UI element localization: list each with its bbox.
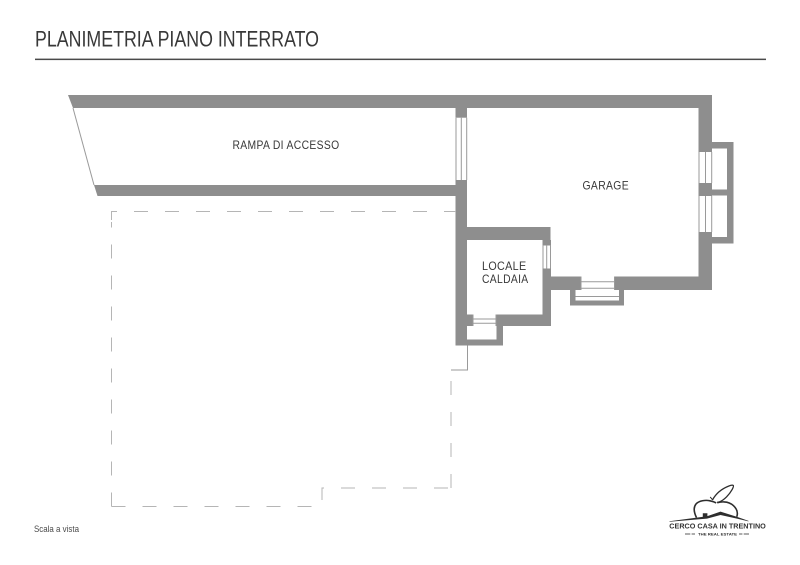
svg-text:CERCO CASA IN TRENTINO: CERCO CASA IN TRENTINO <box>669 522 766 531</box>
svg-text:GARAGE: GARAGE <box>583 179 630 193</box>
svg-text:THE REAL ESTATE: THE REAL ESTATE <box>698 533 738 537</box>
svg-text:Scala a vista: Scala a vista <box>34 524 80 535</box>
svg-text:CALDAIA: CALDAIA <box>482 272 529 286</box>
svg-text:RAMPA DI ACCESSO: RAMPA DI ACCESSO <box>233 138 340 152</box>
svg-text:PLANIMETRIA PIANO INTERRATO: PLANIMETRIA PIANO INTERRATO <box>35 26 319 51</box>
